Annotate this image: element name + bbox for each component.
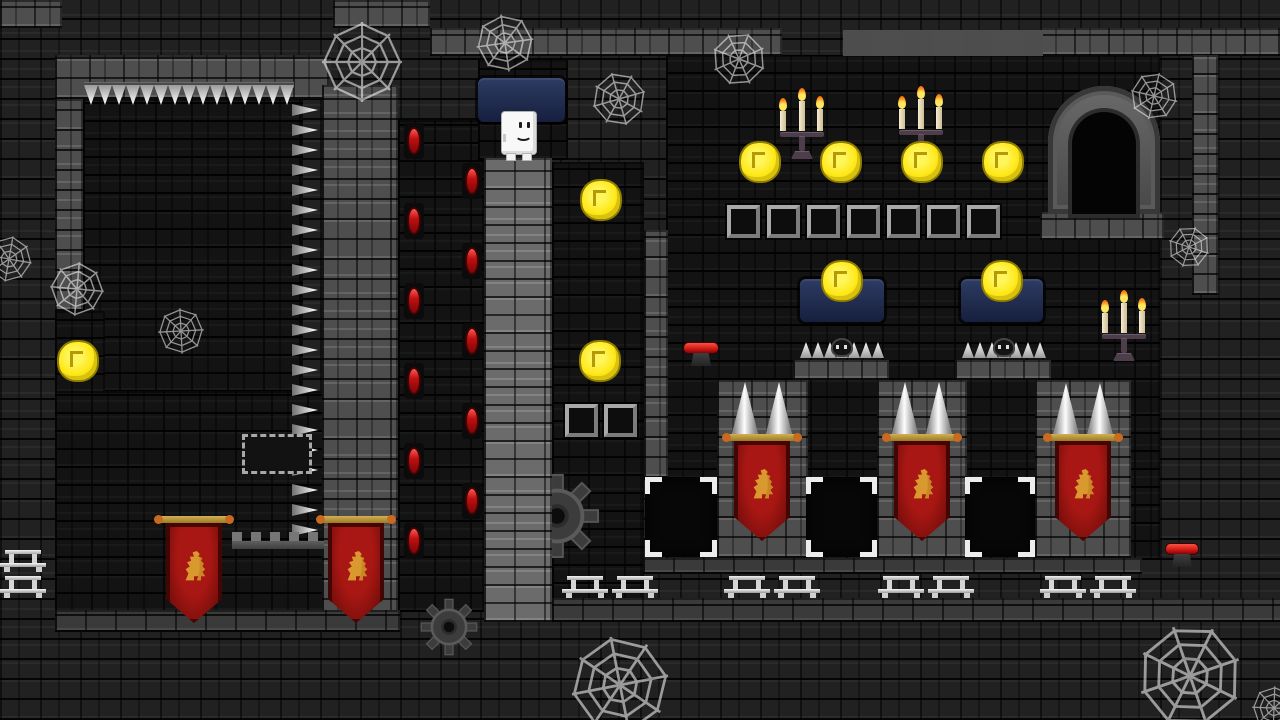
game-canvas[interactable] bbox=[0, 0, 1280, 720]
spider-web bbox=[149, 299, 214, 364]
spider-web bbox=[1121, 63, 1187, 129]
spider-web bbox=[0, 232, 36, 285]
layer-webs bbox=[0, 0, 1280, 720]
spider-web bbox=[1243, 677, 1280, 720]
spider-web bbox=[322, 22, 402, 102]
spider-web bbox=[48, 260, 107, 319]
spider-web bbox=[464, 2, 545, 83]
spider-web bbox=[563, 628, 678, 720]
spider-web bbox=[1161, 219, 1217, 275]
spider-web bbox=[704, 24, 774, 94]
spider-web bbox=[1120, 606, 1259, 720]
spider-web bbox=[586, 66, 653, 133]
